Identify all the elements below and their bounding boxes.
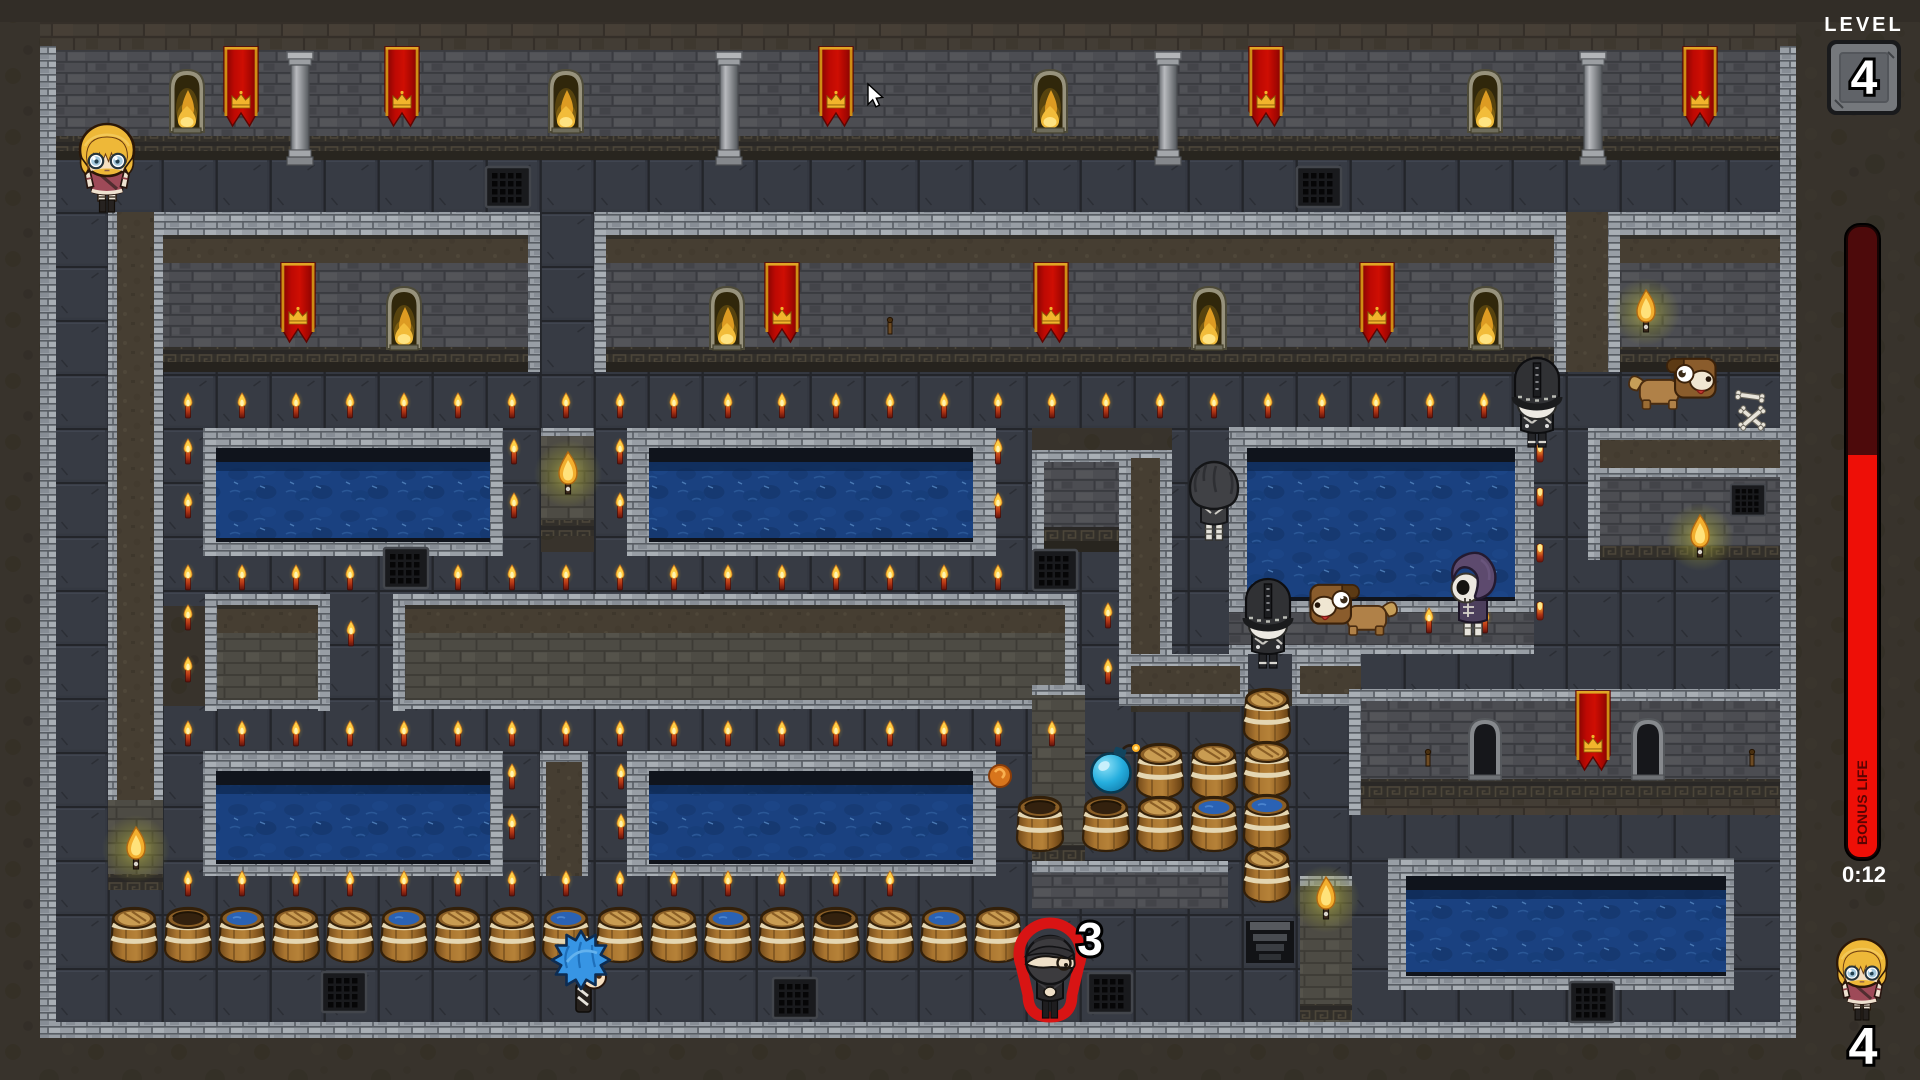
svg-text:0:12: 0:12 — [1842, 862, 1886, 887]
svg-text:4: 4 — [1849, 1018, 1878, 1076]
svg-text:BONUS LIFE: BONUS LIFE — [1854, 760, 1870, 845]
svg-text:3: 3 — [1077, 913, 1103, 965]
svg-text:4: 4 — [1851, 52, 1878, 105]
svg-text:LEVEL: LEVEL — [1824, 14, 1903, 36]
